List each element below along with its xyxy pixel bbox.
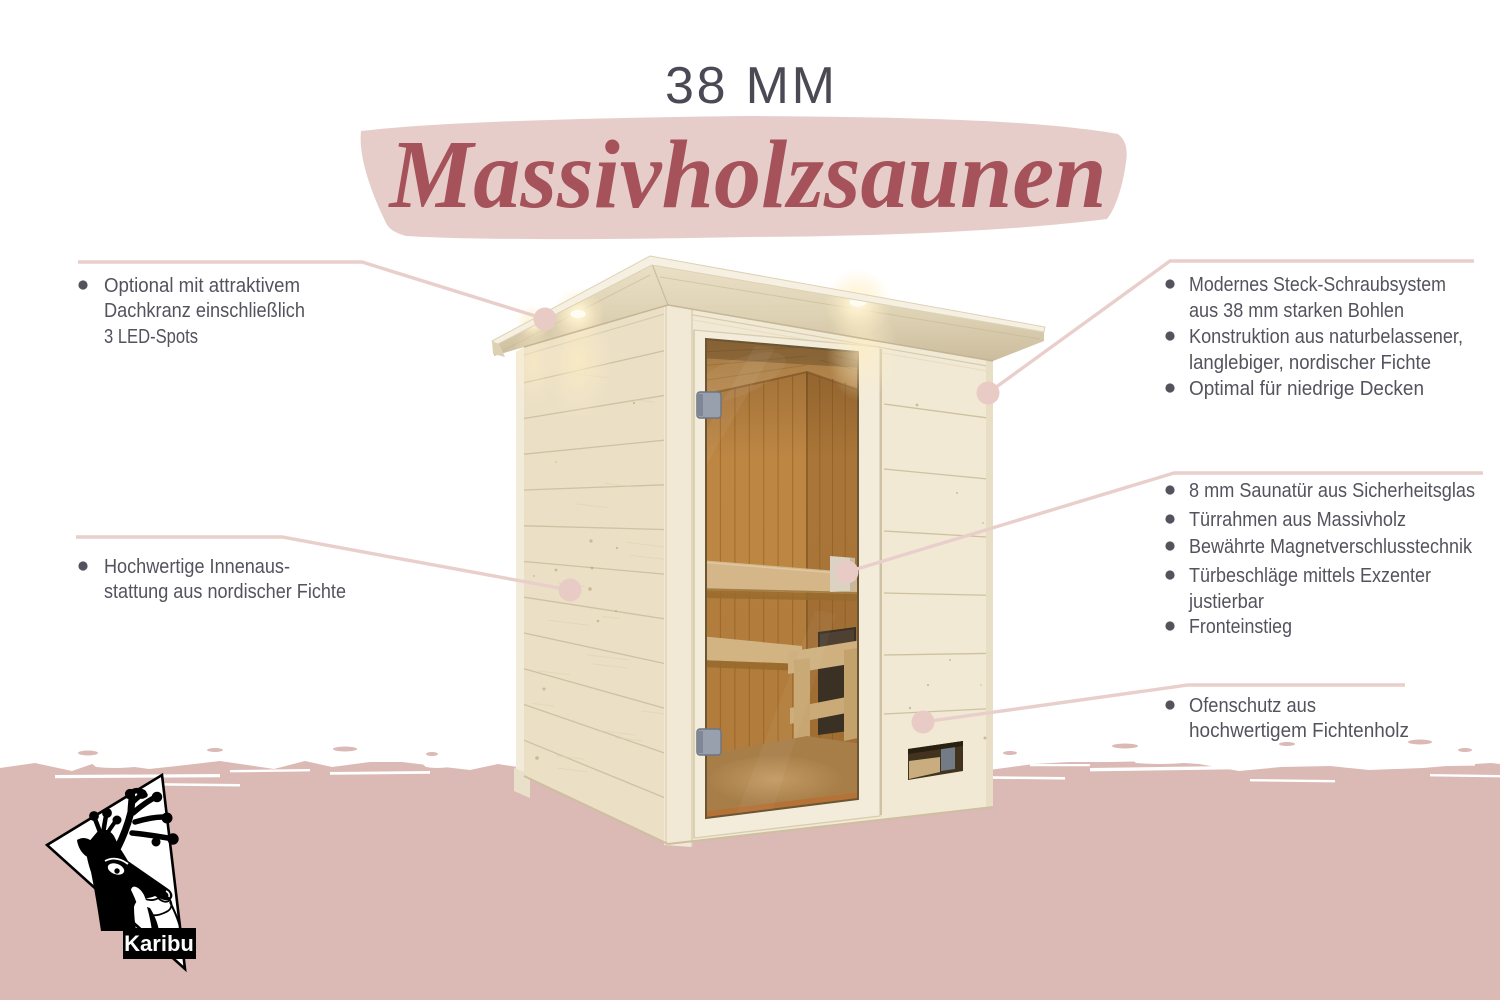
svg-text:38 MM: 38 MM bbox=[665, 57, 835, 115]
svg-text:Fronteinstieg: Fronteinstieg bbox=[1189, 615, 1292, 638]
svg-text:Optional mit attraktivem: Optional mit attraktivem bbox=[104, 274, 300, 297]
svg-text:8 mm Saunatür aus Sicherheitsg: 8 mm Saunatür aus Sicherheitsglas bbox=[1189, 479, 1475, 502]
svg-text:Türbeschläge mittels Exzenter: Türbeschläge mittels Exzenter bbox=[1189, 564, 1431, 587]
svg-text:Ofenschutz aus: Ofenschutz aus bbox=[1189, 694, 1316, 717]
svg-text:Hochwertige Innenaus-: Hochwertige Innenaus- bbox=[104, 555, 290, 578]
svg-text:Massivholzsaunen: Massivholzsaunen bbox=[388, 121, 1107, 228]
svg-text:aus 38 mm starken Bohlen: aus 38 mm starken Bohlen bbox=[1189, 299, 1404, 322]
svg-text:Dachkranz einschließlich: Dachkranz einschließlich bbox=[104, 299, 305, 322]
svg-text:langlebiger, nordischer Fichte: langlebiger, nordischer Fichte bbox=[1189, 351, 1431, 374]
svg-text:3 LED-Spots: 3 LED-Spots bbox=[104, 325, 198, 348]
svg-text:stattung aus nordischer Fichte: stattung aus nordischer Fichte bbox=[104, 580, 346, 603]
svg-text:Karibu: Karibu bbox=[124, 931, 194, 956]
svg-text:Optimal für niedrige Decken: Optimal für niedrige Decken bbox=[1189, 377, 1424, 400]
svg-text:Türrahmen aus Massivholz: Türrahmen aus Massivholz bbox=[1189, 508, 1406, 531]
svg-text:Konstruktion aus naturbelassen: Konstruktion aus naturbelassener, bbox=[1189, 325, 1463, 348]
svg-text:hochwertigem Fichtenholz: hochwertigem Fichtenholz bbox=[1189, 719, 1409, 742]
svg-text:Bewährte Magnetverschlusstechn: Bewährte Magnetverschlusstechnik bbox=[1189, 535, 1473, 558]
svg-text:Modernes Steck-Schraubsystem: Modernes Steck-Schraubsystem bbox=[1189, 273, 1446, 296]
svg-text:justierbar: justierbar bbox=[1188, 590, 1264, 613]
